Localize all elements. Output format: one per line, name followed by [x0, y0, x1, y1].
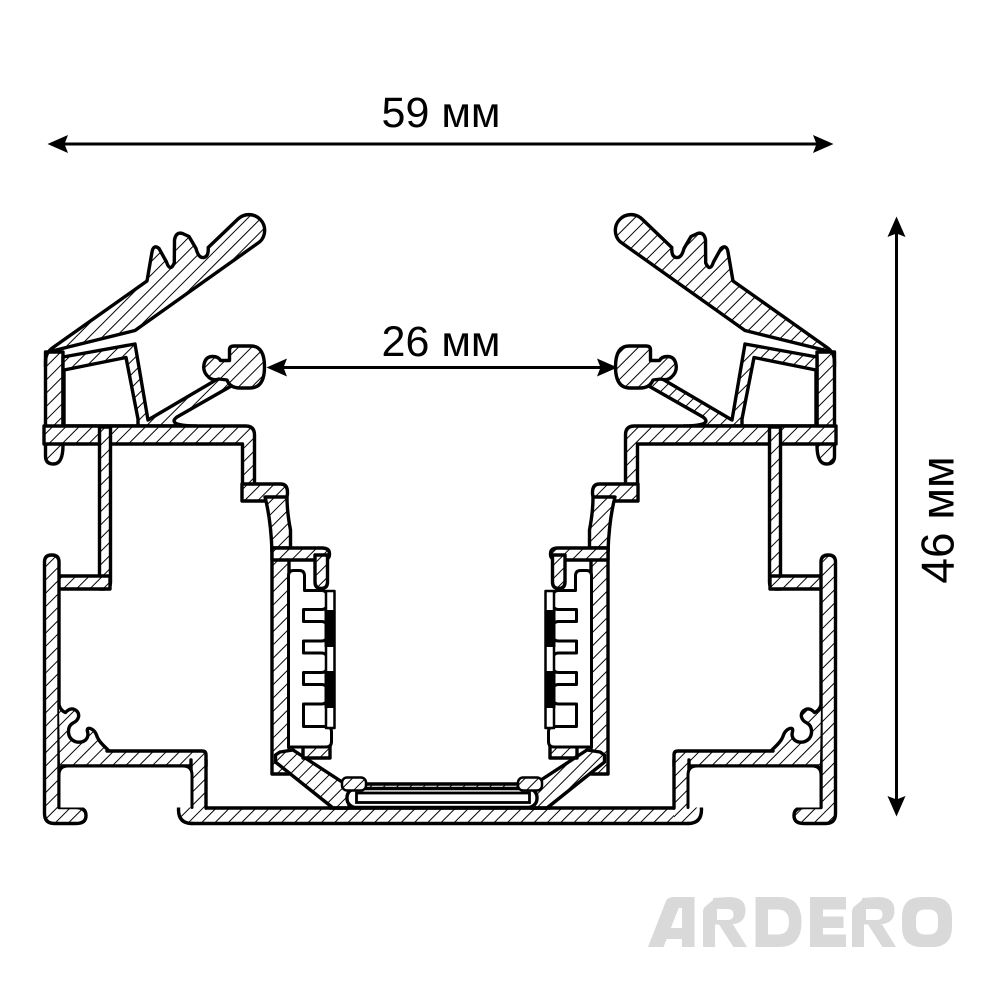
svg-text:46 мм: 46 мм: [912, 456, 964, 583]
svg-text:26 мм: 26 мм: [382, 318, 501, 366]
svg-text:59 мм: 59 мм: [382, 89, 501, 137]
